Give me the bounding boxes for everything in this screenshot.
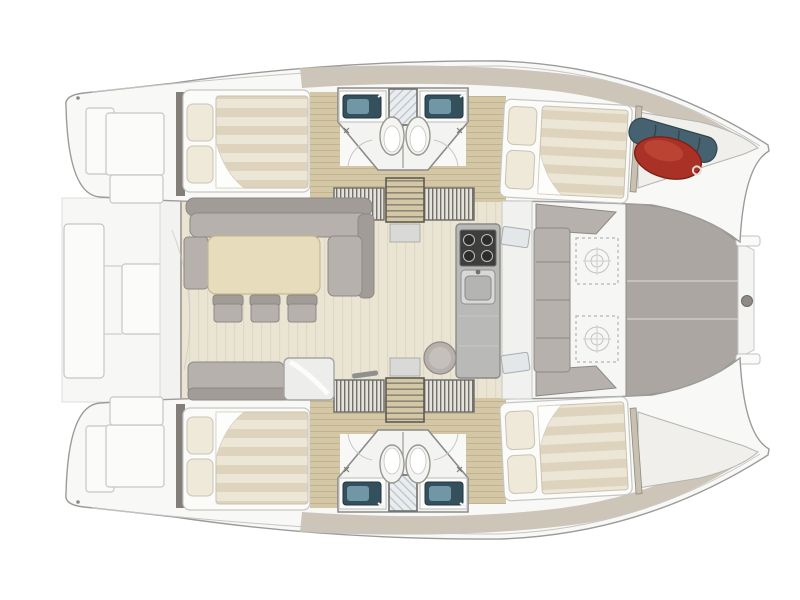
- aft-coachroof-band: [160, 200, 182, 400]
- settee-seat: [190, 213, 368, 237]
- dining-stools: [213, 295, 317, 322]
- bow-bridle-fitting: [742, 296, 753, 307]
- forward-bulkhead: [501, 201, 532, 399]
- galley-sink-basin: [465, 276, 491, 300]
- stool: [213, 295, 243, 322]
- burner: [482, 235, 493, 246]
- stool-seat: [214, 304, 242, 322]
- burner: [482, 251, 493, 262]
- galley: [456, 224, 500, 378]
- round-stool: [424, 342, 456, 374]
- stool-seat: [288, 304, 316, 322]
- round-stool-top: [429, 347, 451, 369]
- stool-seat: [251, 304, 279, 322]
- stool: [250, 295, 280, 322]
- settee-armrest: [184, 237, 208, 289]
- burner: [464, 235, 475, 246]
- stair-landing-top: [390, 224, 420, 242]
- davit-platform: [64, 224, 104, 378]
- floor-plan-stage: [0, 0, 800, 600]
- forward-door-panel: [501, 226, 530, 248]
- catamaran-floor-plan: [0, 0, 800, 600]
- stool: [287, 295, 317, 322]
- galley-faucet: [476, 270, 481, 275]
- forward-door-panel: [501, 352, 530, 374]
- cockpit-module: [122, 264, 162, 334]
- stair-landing-bottom: [390, 358, 420, 376]
- burner: [464, 251, 475, 262]
- chaise-seat: [328, 236, 362, 296]
- dining-table: [208, 236, 320, 294]
